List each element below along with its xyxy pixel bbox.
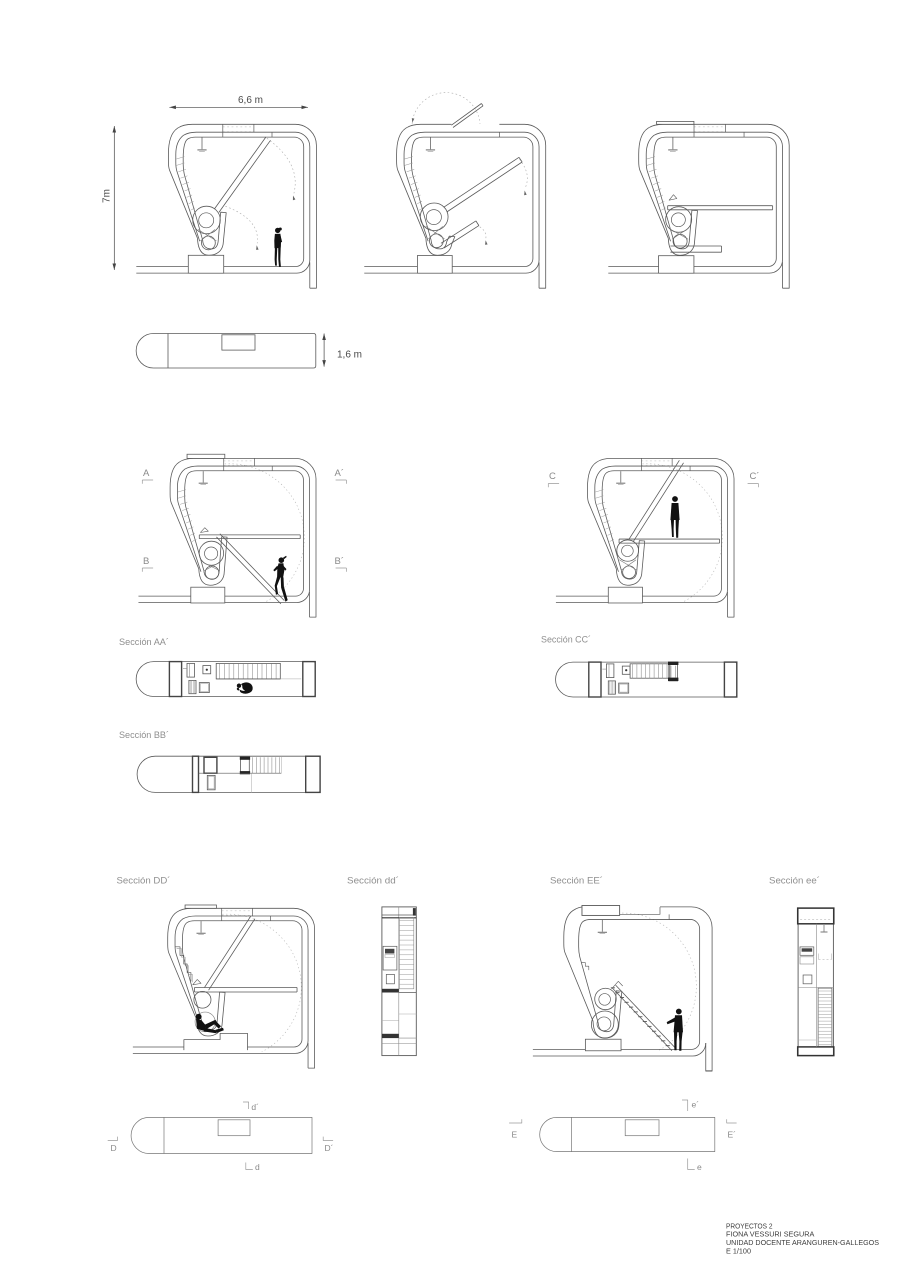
svg-text:Sección AA´: Sección AA´ [119, 637, 169, 647]
svg-text:d´: d´ [251, 1102, 259, 1112]
svg-text:E 1/100: E 1/100 [726, 1246, 751, 1255]
svg-text:D: D [111, 1143, 117, 1153]
svg-text:D´: D´ [325, 1143, 334, 1153]
svg-text:Sección BB´: Sección BB´ [119, 730, 169, 740]
svg-text:C´: C´ [750, 471, 760, 482]
svg-text:E: E [512, 1130, 518, 1140]
svg-text:Sección CC´: Sección CC´ [541, 635, 591, 645]
svg-text:Sección EE´: Sección EE´ [550, 876, 603, 886]
svg-text:e´: e´ [692, 1100, 700, 1110]
svg-text:B: B [143, 556, 149, 567]
svg-text:6,6 m: 6,6 m [238, 95, 263, 106]
svg-text:Sección DD´: Sección DD´ [117, 876, 171, 886]
svg-text:Sección ee´: Sección ee´ [769, 876, 820, 886]
svg-text:E´: E´ [728, 1130, 737, 1140]
svg-text:Sección dd´: Sección dd´ [347, 876, 399, 886]
svg-text:B´: B´ [335, 556, 345, 567]
svg-text:A: A [143, 468, 150, 479]
svg-text:C: C [549, 471, 556, 482]
svg-text:1,6 m: 1,6 m [337, 349, 362, 360]
svg-text:7m: 7m [102, 189, 113, 203]
svg-text:e: e [697, 1162, 702, 1172]
svg-text:A´: A´ [335, 468, 345, 479]
svg-text:d: d [255, 1162, 260, 1172]
